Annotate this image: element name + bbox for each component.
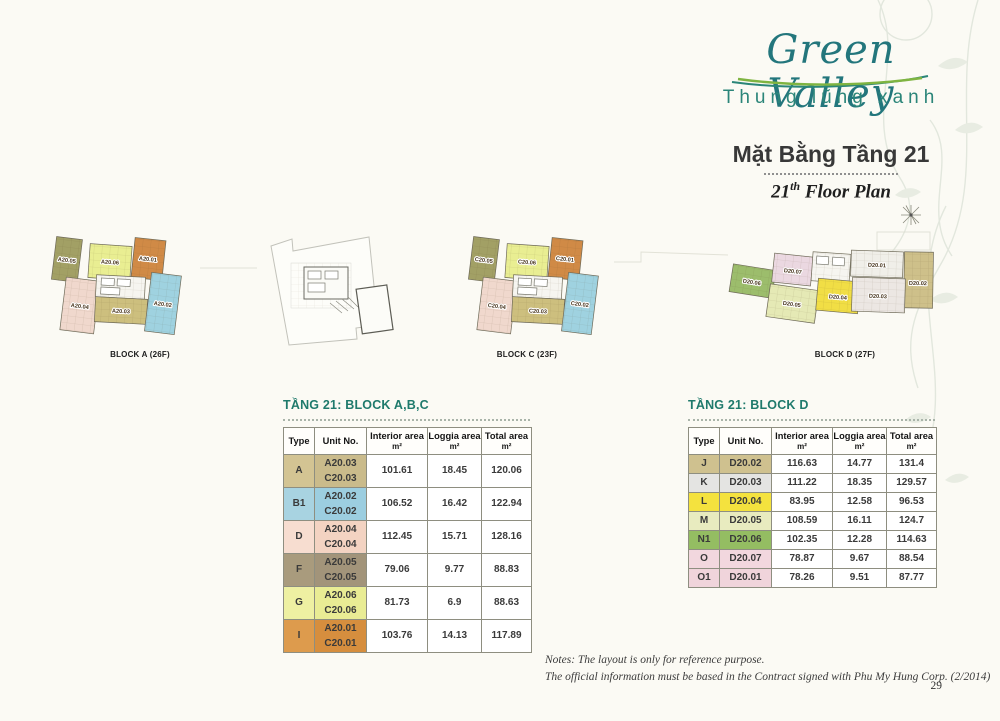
loggia-area-cell: 14.77 xyxy=(833,454,887,473)
type-cell: O1 xyxy=(689,568,720,587)
notes-line-1: Notes: The layout is only for reference … xyxy=(545,652,990,669)
unit-D20.07: D20.07 xyxy=(772,253,814,286)
unit-label: A20.03 xyxy=(112,309,130,316)
interior-area-cell: 112.45 xyxy=(367,520,428,553)
unit-cell: D20.02 xyxy=(720,454,772,473)
unit-cell: D20.01 xyxy=(720,568,772,587)
unit-D20.02: D20.02 xyxy=(904,252,934,308)
unit-label: D20.03 xyxy=(869,294,887,301)
unit-cell: D20.07 xyxy=(720,549,772,568)
table-row: IA20.01C20.01103.7614.13117.89 xyxy=(284,619,532,652)
core-room xyxy=(101,278,114,286)
loggia-area-cell: 12.58 xyxy=(833,492,887,511)
unit-cell: A20.06C20.06 xyxy=(315,586,367,619)
unit-cell: A20.02C20.02 xyxy=(315,487,367,520)
table-abc-title: TẦNG 21: BLOCK A,B,C xyxy=(283,398,530,421)
table-row: JD20.02116.6314.77131.4 xyxy=(689,454,937,473)
floor-ordinal: th xyxy=(790,179,800,193)
interior-area-cell: 106.52 xyxy=(367,487,428,520)
block-b-outline xyxy=(258,221,418,363)
total-area-cell: 120.06 xyxy=(482,454,532,487)
table-d-title: TẦNG 21: BLOCK D xyxy=(688,398,935,421)
table-row: LD20.0483.9512.5896.53 xyxy=(689,492,937,511)
logo-subtitle: Thung lũng xanh xyxy=(700,87,962,109)
column-header: Interior aream² xyxy=(367,428,428,455)
total-area-cell: 124.7 xyxy=(887,511,937,530)
unit-A20.04: A20.04 xyxy=(60,277,100,334)
column-header: Interior aream² xyxy=(772,428,833,455)
block-d-floorplan: D20.06 D20.07 D20.01 D20.02 D20.05 xyxy=(728,240,958,355)
table-row: DA20.04C20.04112.4515.71128.16 xyxy=(284,520,532,553)
block-d-caption: BLOCK D (27F) xyxy=(780,350,910,359)
core-room xyxy=(117,279,130,287)
page-number: 29 xyxy=(900,680,942,692)
interior-area-cell: 83.95 xyxy=(772,492,833,511)
interior-area-cell: 111.22 xyxy=(772,473,833,492)
type-cell: J xyxy=(689,454,720,473)
total-area-cell: 88.83 xyxy=(482,553,532,586)
core-room xyxy=(534,279,547,287)
page-title: Mặt Bằng Tầng 21 xyxy=(705,141,957,168)
unit-cell: A20.03C20.03 xyxy=(315,454,367,487)
core-area xyxy=(512,275,562,300)
interior-area-cell: 79.06 xyxy=(367,553,428,586)
table-d-section: TẦNG 21: BLOCK D TypeUnit No.Interior ar… xyxy=(688,398,935,588)
column-header: Loggia aream² xyxy=(428,428,482,455)
interior-area-cell: 101.61 xyxy=(367,454,428,487)
table-row: AA20.03C20.03101.6118.45120.06 xyxy=(284,454,532,487)
unit-cell: A20.04C20.04 xyxy=(315,520,367,553)
table-row: B1A20.02C20.02106.5216.42122.94 xyxy=(284,487,532,520)
block-a-caption: BLOCK A (26F) xyxy=(75,350,205,359)
table-row: KD20.03111.2218.35129.57 xyxy=(689,473,937,492)
interior-area-cell: 78.87 xyxy=(772,549,833,568)
total-area-cell: 131.4 xyxy=(887,454,937,473)
loggia-area-cell: 9.67 xyxy=(833,549,887,568)
type-cell: I xyxy=(284,619,315,652)
table-row: O1D20.0178.269.5187.77 xyxy=(689,568,937,587)
interior-area-cell: 102.35 xyxy=(772,530,833,549)
core-room xyxy=(518,287,537,295)
unit-A20.05: A20.05 xyxy=(51,237,82,283)
floor-number: 21 xyxy=(771,181,790,202)
column-header: Type xyxy=(689,428,720,455)
column-header: Total aream² xyxy=(482,428,532,455)
table-row: N1D20.06102.3512.28114.63 xyxy=(689,530,937,549)
interior-area-cell: 108.59 xyxy=(772,511,833,530)
unit-cell: D20.04 xyxy=(720,492,772,511)
loggia-area-cell: 16.42 xyxy=(428,487,482,520)
type-cell: M xyxy=(689,511,720,530)
type-cell: N1 xyxy=(689,530,720,549)
type-cell: F xyxy=(284,553,315,586)
unit-C20.06: C20.06 xyxy=(505,244,549,281)
loggia-area-cell: 12.28 xyxy=(833,530,887,549)
total-area-cell: 87.77 xyxy=(887,568,937,587)
unit-cell: A20.05C20.05 xyxy=(315,553,367,586)
total-area-cell: 88.54 xyxy=(887,549,937,568)
table-row: MD20.05108.5916.11124.7 xyxy=(689,511,937,530)
unit-cell: D20.06 xyxy=(720,530,772,549)
type-cell: A xyxy=(284,454,315,487)
core-room xyxy=(518,278,531,286)
block-a-floorplan: A20.05 A20.06 A20.01 A20.04 A20.03 xyxy=(45,226,195,351)
total-area-cell: 128.16 xyxy=(482,520,532,553)
core-area xyxy=(811,252,851,284)
unit-cell: D20.05 xyxy=(720,511,772,530)
unit-label: D20.01 xyxy=(868,263,886,270)
type-cell: L xyxy=(689,492,720,511)
loggia-area-cell: 9.77 xyxy=(428,553,482,586)
column-header: Type xyxy=(284,428,315,455)
column-header: Unit No. xyxy=(315,428,367,455)
loggia-area-cell: 18.45 xyxy=(428,454,482,487)
total-area-cell: 117.89 xyxy=(482,619,532,652)
table-row: GA20.06C20.0681.736.988.63 xyxy=(284,586,532,619)
loggia-area-cell: 14.13 xyxy=(428,619,482,652)
block-c-caption: BLOCK C (23F) xyxy=(462,350,592,359)
core-room xyxy=(101,287,120,295)
core-area xyxy=(95,275,145,300)
unit-label: D20.02 xyxy=(909,281,927,287)
total-area-cell: 88.63 xyxy=(482,586,532,619)
loggia-area-cell: 15.71 xyxy=(428,520,482,553)
table-abc: TypeUnit No.Interior aream²Loggia aream²… xyxy=(283,427,530,653)
total-area-cell: 114.63 xyxy=(887,530,937,549)
unit-label: C20.03 xyxy=(529,309,547,316)
interior-area-cell: 103.76 xyxy=(367,619,428,652)
page-subtitle: 21th Floor Plan xyxy=(705,179,957,203)
interior-area-cell: 78.26 xyxy=(772,568,833,587)
unit-cell: A20.01C20.01 xyxy=(315,619,367,652)
loggia-area-cell: 16.11 xyxy=(833,511,887,530)
unit-C20.03: C20.03 xyxy=(511,297,564,325)
unit-A20.03: A20.03 xyxy=(94,297,147,325)
unit-D20.03: D20.03 xyxy=(851,277,905,313)
unit-D20.01: D20.01 xyxy=(851,250,904,278)
brochure-page: Green Valley Thung lũng xanh Mặt Bằng Tầ… xyxy=(0,0,1000,721)
type-cell: O xyxy=(689,549,720,568)
interior-area-cell: 116.63 xyxy=(772,454,833,473)
unit-A20.02: A20.02 xyxy=(144,272,181,334)
unit-cell: D20.03 xyxy=(720,473,772,492)
unit-label: C20.06 xyxy=(518,259,536,266)
unit-C20.04: C20.04 xyxy=(477,277,517,334)
unit-label: A20.06 xyxy=(101,259,119,266)
floor-plan-text: Floor Plan xyxy=(800,181,891,202)
column-header: Total aream² xyxy=(887,428,937,455)
interior-area-cell: 81.73 xyxy=(367,586,428,619)
compass-icon xyxy=(898,202,924,228)
unit-D20.05: D20.05 xyxy=(766,284,819,323)
loggia-area-cell: 6.9 xyxy=(428,586,482,619)
table-d: TypeUnit No.Interior aream²Loggia aream²… xyxy=(688,427,935,588)
table-abc-section: TẦNG 21: BLOCK A,B,C TypeUnit No.Interio… xyxy=(283,398,530,653)
unit-C20.02: C20.02 xyxy=(561,272,598,334)
table-row: OD20.0778.879.6788.54 xyxy=(689,549,937,568)
column-header: Loggia aream² xyxy=(833,428,887,455)
type-cell: B1 xyxy=(284,487,315,520)
block-b-annex xyxy=(356,285,393,334)
total-area-cell: 129.57 xyxy=(887,473,937,492)
table-row: FA20.05C20.0579.069.7788.83 xyxy=(284,553,532,586)
type-cell: D xyxy=(284,520,315,553)
core-room xyxy=(832,257,845,266)
area-table: TypeUnit No.Interior aream²Loggia aream²… xyxy=(283,427,532,653)
area-table: TypeUnit No.Interior aream²Loggia aream²… xyxy=(688,427,937,588)
loggia-area-cell: 18.35 xyxy=(833,473,887,492)
column-header: Unit No. xyxy=(720,428,772,455)
total-area-cell: 96.53 xyxy=(887,492,937,511)
type-cell: G xyxy=(284,586,315,619)
unit-A20.06: A20.06 xyxy=(88,244,132,281)
loggia-area-cell: 9.51 xyxy=(833,568,887,587)
total-area-cell: 122.94 xyxy=(482,487,532,520)
core-room xyxy=(816,256,829,265)
type-cell: K xyxy=(689,473,720,492)
unit-C20.05: C20.05 xyxy=(468,237,499,283)
title-divider xyxy=(764,173,898,175)
block-c-floorplan: C20.05 C20.06 C20.01 C20.04 C20.03 xyxy=(462,226,612,351)
